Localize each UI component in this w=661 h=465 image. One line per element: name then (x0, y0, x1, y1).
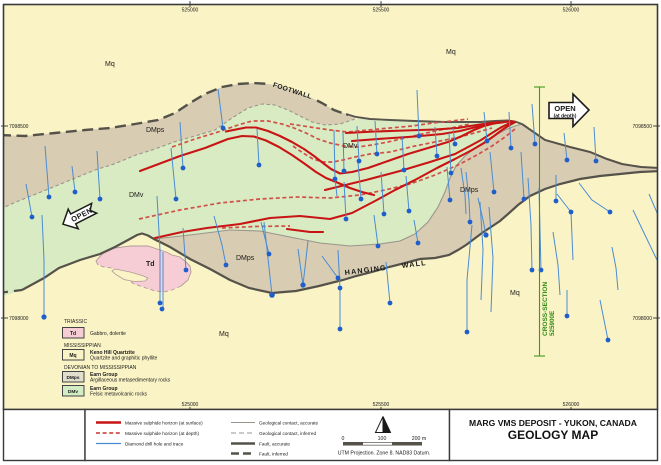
svg-text:DMps: DMps (460, 187, 479, 194)
svg-text:Massive sulphide horizon (at s: Massive sulphide horizon (at surface) (125, 421, 203, 426)
svg-text:MARG VMS DEPOSIT - YUKON, CANA: MARG VMS DEPOSIT - YUKON, CANADA (469, 418, 637, 428)
svg-text:Geological contact, inferred: Geological contact, inferred (259, 431, 316, 436)
svg-text:525500: 525500 (373, 8, 390, 14)
svg-text:7098500: 7098500 (633, 124, 653, 130)
svg-text:200 m: 200 m (412, 436, 426, 442)
svg-text:525000: 525000 (182, 402, 199, 408)
svg-text:Argillaceous metasedimentary r: Argillaceous metasedimentary rocks (90, 378, 171, 384)
svg-text:Felsic metavolcanic rocks: Felsic metavolcanic rocks (90, 392, 147, 398)
svg-text:DMps: DMps (236, 255, 255, 262)
svg-text:MISSISSIPPIAN: MISSISSIPPIAN (64, 343, 101, 349)
svg-text:526000: 526000 (563, 402, 580, 408)
svg-text:525500: 525500 (373, 402, 390, 408)
svg-text:GEOLOGY MAP: GEOLOGY MAP (508, 428, 598, 442)
svg-text:Td: Td (146, 261, 155, 268)
svg-text:Mq: Mq (446, 49, 456, 56)
svg-text:DMps: DMps (66, 375, 79, 381)
svg-text:Fault, inferred: Fault, inferred (259, 452, 288, 457)
svg-text:UTM Projection. Zone 8. NAD83: UTM Projection. Zone 8. NAD83 Datum. (338, 451, 431, 457)
svg-text:526000: 526000 (563, 8, 580, 14)
svg-text:Mq: Mq (105, 61, 115, 68)
svg-text:Geological contact, accurate: Geological contact, accurate (259, 421, 319, 426)
svg-text:CROSS-SECTION: CROSS-SECTION (542, 282, 549, 336)
svg-text:7098000: 7098000 (9, 316, 29, 322)
svg-text:Td: Td (70, 331, 76, 337)
svg-text:Diamond drill hole and trace: Diamond drill hole and trace (125, 442, 184, 447)
svg-text:Quartzite and graphitic phylli: Quartzite and graphitic phyllite (90, 356, 157, 362)
svg-text:0: 0 (342, 436, 345, 442)
svg-text:(at depth): (at depth) (554, 114, 577, 120)
svg-text:525000: 525000 (182, 8, 199, 14)
svg-text:Mq: Mq (510, 290, 520, 297)
svg-text:OPEN: OPEN (554, 104, 575, 113)
svg-text:525900E: 525900E (549, 311, 556, 336)
svg-text:100: 100 (378, 436, 387, 442)
svg-text:7098500: 7098500 (9, 124, 29, 130)
svg-text:DMv: DMv (343, 143, 358, 150)
svg-text:Massive sulphide horizon (at d: Massive sulphide horizon (at depth) (125, 431, 199, 436)
svg-text:DEVONIAN TO MISSISSIPPIAN: DEVONIAN TO MISSISSIPPIAN (64, 365, 137, 371)
svg-text:DMv: DMv (68, 389, 78, 395)
svg-text:Gabbro, dolerite: Gabbro, dolerite (90, 331, 126, 337)
svg-text:Mq: Mq (219, 331, 229, 338)
svg-text:DMv: DMv (129, 192, 144, 199)
svg-text:Mq: Mq (69, 353, 76, 359)
svg-text:7098000: 7098000 (633, 316, 653, 322)
svg-text:DMps: DMps (146, 127, 165, 134)
svg-text:Fault, accurate: Fault, accurate (259, 442, 290, 447)
svg-text:TRIASSIC: TRIASSIC (64, 319, 87, 325)
